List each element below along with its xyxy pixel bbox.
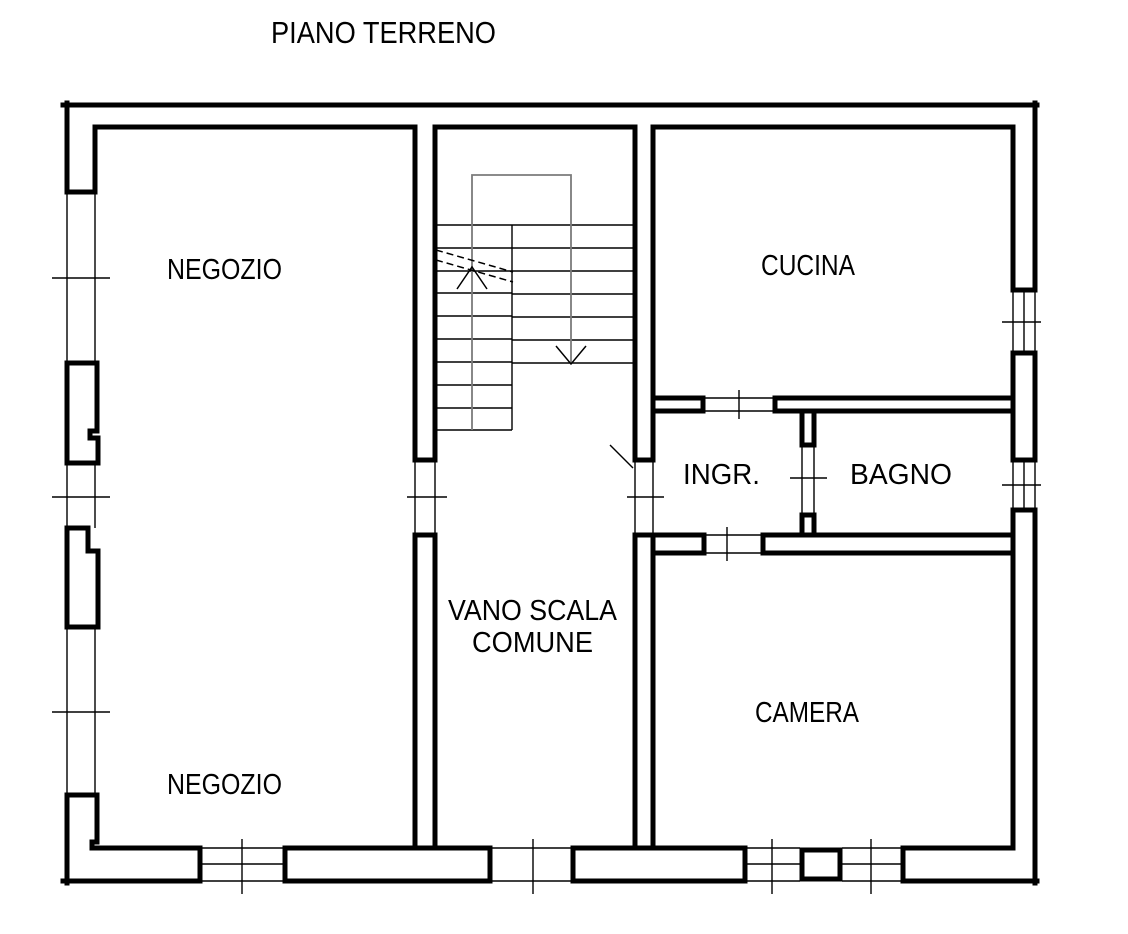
floor-plan-svg: PIANO TERRENO NEGOZIO CUCINA INGR. BAGNO… <box>0 0 1128 934</box>
room-label-negozio-top: NEGOZIO <box>167 254 282 286</box>
plan-title: PIANO TERRENO <box>271 15 496 50</box>
room-label-cucina: CUCINA <box>761 250 856 282</box>
room-label-vano-scala-line1: VANO SCALA <box>448 595 618 627</box>
room-label-ingresso: INGR. <box>683 459 760 491</box>
room-label-bagno: BAGNO <box>850 459 952 491</box>
room-label-vano-scala-line2: COMUNE <box>472 627 593 659</box>
floor-plan-sheet: PIANO TERRENO NEGOZIO CUCINA INGR. BAGNO… <box>0 0 1128 934</box>
room-label-camera: CAMERA <box>755 697 860 729</box>
room-label-negozio-bottom: NEGOZIO <box>167 769 282 801</box>
